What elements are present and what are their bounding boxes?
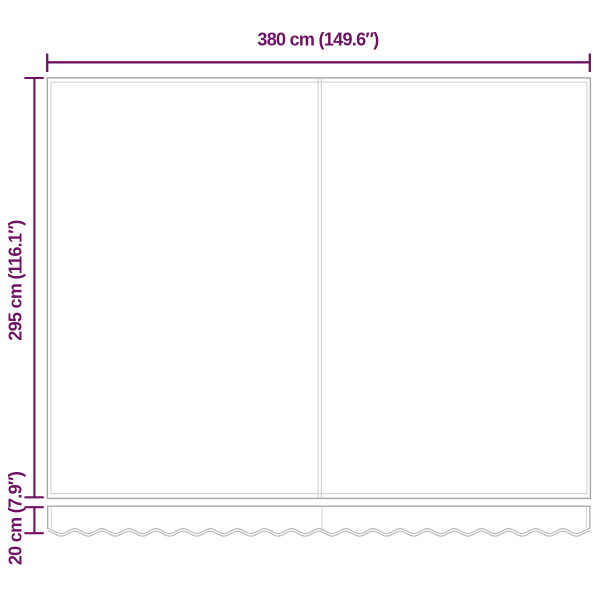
svg-text:380 cm (149.6″): 380 cm (149.6″) <box>257 29 379 49</box>
svg-text:20 cm (7.9″): 20 cm (7.9″) <box>6 471 26 565</box>
svg-text:295 cm (116.1″): 295 cm (116.1″) <box>6 220 26 341</box>
